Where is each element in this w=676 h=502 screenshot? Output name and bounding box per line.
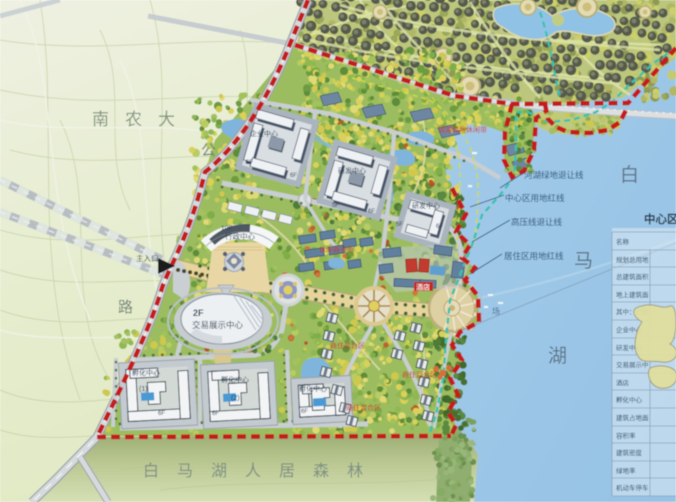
svg-text:公: 公 [201, 142, 216, 159]
svg-text:中心区用地红线: 中心区用地红线 [505, 193, 565, 203]
svg-text:机动车停车: 机动车停车 [616, 483, 649, 492]
svg-text:主入口: 主入口 [136, 253, 159, 263]
svg-text:场: 场 [492, 307, 500, 316]
svg-text:路: 路 [118, 299, 133, 316]
svg-text:中心区: 中心区 [644, 212, 676, 226]
svg-text:孵化中心: 孵化中心 [299, 384, 327, 393]
svg-text:5F: 5F [396, 222, 403, 228]
svg-text:6F: 6F [212, 411, 219, 417]
svg-text:孵化中心: 孵化中心 [221, 375, 249, 384]
svg-text:2F: 2F [193, 308, 204, 318]
svg-text:绿地率: 绿地率 [616, 466, 636, 475]
svg-text:休闲商业街: 休闲商业街 [319, 245, 354, 254]
svg-text:商住混合区: 商住混合区 [330, 341, 365, 350]
svg-text:孵化中心: 孵化中心 [616, 395, 643, 404]
svg-text:10F: 10F [221, 225, 232, 232]
svg-text:孵化中心: 孵化中心 [132, 368, 160, 377]
svg-text:南农大: 南农大 [92, 110, 191, 129]
svg-text:居住区用地红线: 居住区用地红线 [504, 251, 564, 261]
svg-text:商住混合区: 商住混合区 [346, 403, 381, 412]
svg-text:交易展示中心: 交易展示中心 [192, 320, 244, 330]
svg-text:河湖绿地退让线: 河湖绿地退让线 [524, 170, 584, 180]
svg-text:湖: 湖 [548, 345, 567, 367]
svg-text:(1): (1) [139, 386, 148, 393]
svg-text:酒店: 酒店 [416, 283, 430, 292]
svg-text:6F: 6F [436, 224, 443, 230]
svg-text:企业中心: 企业中心 [250, 129, 278, 138]
svg-text:研发中心: 研发中心 [338, 166, 366, 175]
svg-text:6F: 6F [158, 411, 165, 417]
svg-text:名称: 名称 [616, 237, 630, 246]
svg-text:(2): (2) [231, 395, 240, 402]
svg-text:马: 马 [574, 251, 593, 272]
svg-text:建筑占地面: 建筑占地面 [616, 413, 649, 422]
svg-text:6F: 6F [368, 209, 375, 215]
svg-text:6F: 6F [290, 173, 297, 179]
svg-text:滨湖绿地休闲带: 滨湖绿地休闲带 [438, 125, 487, 134]
svg-text:建筑密度: 建筑密度 [616, 448, 643, 457]
svg-text:行政中心: 行政中心 [225, 231, 255, 241]
svg-text:高压线退让线: 高压线退让线 [511, 217, 563, 227]
svg-text:交易展示中: 交易展示中 [616, 360, 649, 369]
svg-text:5F: 5F [246, 160, 253, 166]
svg-text:研发中心: 研发中心 [412, 201, 440, 210]
svg-text:酒店: 酒店 [616, 378, 630, 387]
svg-text:6F: 6F [301, 409, 308, 415]
svg-text:容积率: 容积率 [616, 431, 636, 440]
svg-text:总建筑面积: 总建筑面积 [616, 272, 649, 281]
svg-text:商住混合区: 商住混合区 [402, 370, 437, 379]
svg-text:5F: 5F [332, 203, 339, 209]
svg-text:规划总用地: 规划总用地 [616, 255, 649, 264]
svg-text:白马湖人居森林: 白马湖人居森林 [143, 462, 381, 480]
svg-text:白: 白 [620, 164, 639, 186]
svg-text:地上建筑面: 地上建筑面 [616, 290, 649, 299]
